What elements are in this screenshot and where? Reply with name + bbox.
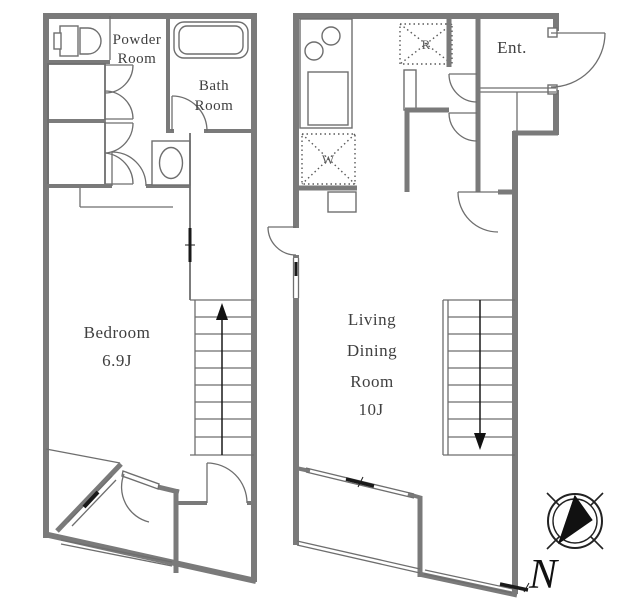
ldk-label-3: Room: [350, 372, 394, 391]
floor-plan-page: Powder Room Bath Room Bedroom 6.9J: [0, 0, 640, 608]
refrigerator-label: R: [422, 37, 431, 52]
compass-rose: N: [528, 493, 603, 598]
bedroom-balcony-door: [122, 471, 159, 522]
right-balcony-railing: [297, 541, 420, 573]
up-arrow-icon: [216, 303, 228, 320]
right-floor-plan: R W: [268, 13, 605, 595]
ldk-size-label: 10J: [358, 400, 383, 419]
floor-plan-drawing: Powder Room Bath Room Bedroom 6.9J: [0, 0, 640, 608]
left-floor-plan: Powder Room Bath Room Bedroom 6.9J: [43, 13, 257, 582]
west-exterior-door: [268, 227, 300, 255]
powder-room-label-2: Room: [118, 51, 157, 67]
shelf: [404, 70, 416, 110]
entrance-label: Ent.: [497, 38, 527, 57]
stairs-up: [190, 300, 254, 455]
washbasin: [152, 141, 190, 185]
kitchen-sink: [308, 72, 348, 125]
bedroom-south-line: [46, 449, 120, 463]
burner-icon: [305, 42, 323, 60]
kitchen-counter: [300, 19, 352, 128]
burner-icon: [322, 27, 340, 45]
down-arrow-icon: [474, 433, 486, 450]
north-label: N: [528, 552, 559, 598]
washer-box: W: [302, 134, 355, 184]
diagonal-window-wall: [57, 464, 121, 531]
cabinet: [328, 192, 356, 212]
ldk-label-2: Dining: [347, 341, 397, 360]
refrigerator-box: R: [400, 24, 452, 64]
closet-upper: [48, 64, 133, 120]
powder-room-label-1: Powder: [113, 32, 162, 48]
ldk-label-1: Living: [348, 310, 396, 329]
toilet: [46, 16, 110, 62]
entrance-door: [548, 28, 605, 94]
bath-room-label-2: Room: [195, 98, 234, 114]
bathtub: [174, 22, 248, 58]
hall-ldk-door: [458, 192, 498, 232]
west-wall-window: [292, 258, 300, 298]
bedroom-size-label: 6.9J: [102, 351, 132, 370]
washer-label: W: [322, 152, 335, 167]
stairs-down: [443, 300, 515, 455]
bedroom-label: Bedroom: [84, 323, 151, 342]
hall-closet-doors: [449, 74, 477, 141]
entrance-step: [478, 88, 556, 131]
ldk-south-window: [296, 468, 422, 498]
storage-room: [158, 463, 254, 573]
bath-room-label-1: Bath: [199, 78, 229, 94]
